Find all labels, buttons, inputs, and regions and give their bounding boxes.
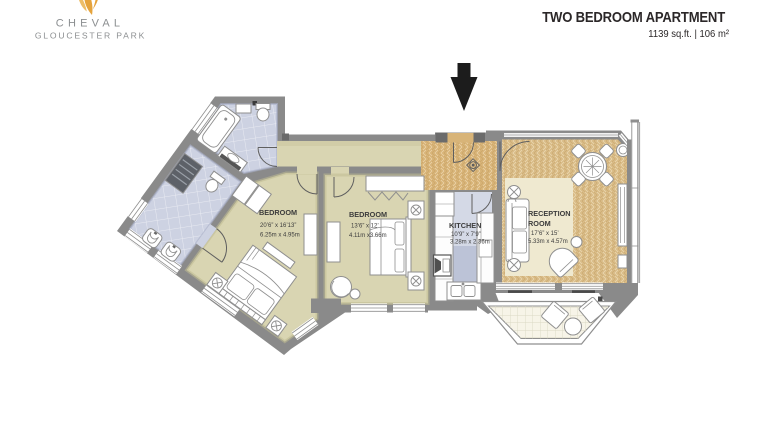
svg-text:13’6” x 12’: 13’6” x 12’ — [351, 224, 379, 230]
svg-text:BEDROOM: BEDROOM — [259, 208, 297, 217]
svg-text:RECEPTION: RECEPTION — [528, 209, 571, 218]
svg-text:20’6” x 16’13”: 20’6” x 16’13” — [260, 223, 296, 229]
svg-text:KITCHEN: KITCHEN — [449, 221, 481, 230]
svg-text:1139 sq.ft. | 106 m²: 1139 sq.ft. | 106 m² — [648, 29, 729, 40]
svg-text:3.28m x 2.36m: 3.28m x 2.36m — [450, 240, 490, 246]
svg-text:4.11m x3.66m: 4.11m x3.66m — [349, 233, 387, 239]
svg-text:ROOM: ROOM — [528, 219, 551, 228]
svg-text:6.25m x 4.95m: 6.25m x 4.95m — [260, 233, 300, 239]
svg-text:TWO BEDROOM APARTMENT: TWO BEDROOM APARTMENT — [542, 9, 725, 26]
svg-text:5.33m x 4.57m: 5.33m x 4.57m — [528, 239, 568, 245]
svg-text:GLOUCESTER PARK: GLOUCESTER PARK — [35, 31, 146, 41]
svg-text:17’6” x 15’: 17’6” x 15’ — [531, 231, 559, 237]
svg-text:10’9” x 7’9”: 10’9” x 7’9” — [451, 232, 481, 238]
svg-text:CHEVAL: CHEVAL — [56, 18, 124, 30]
svg-text:BEDROOM: BEDROOM — [349, 210, 387, 219]
